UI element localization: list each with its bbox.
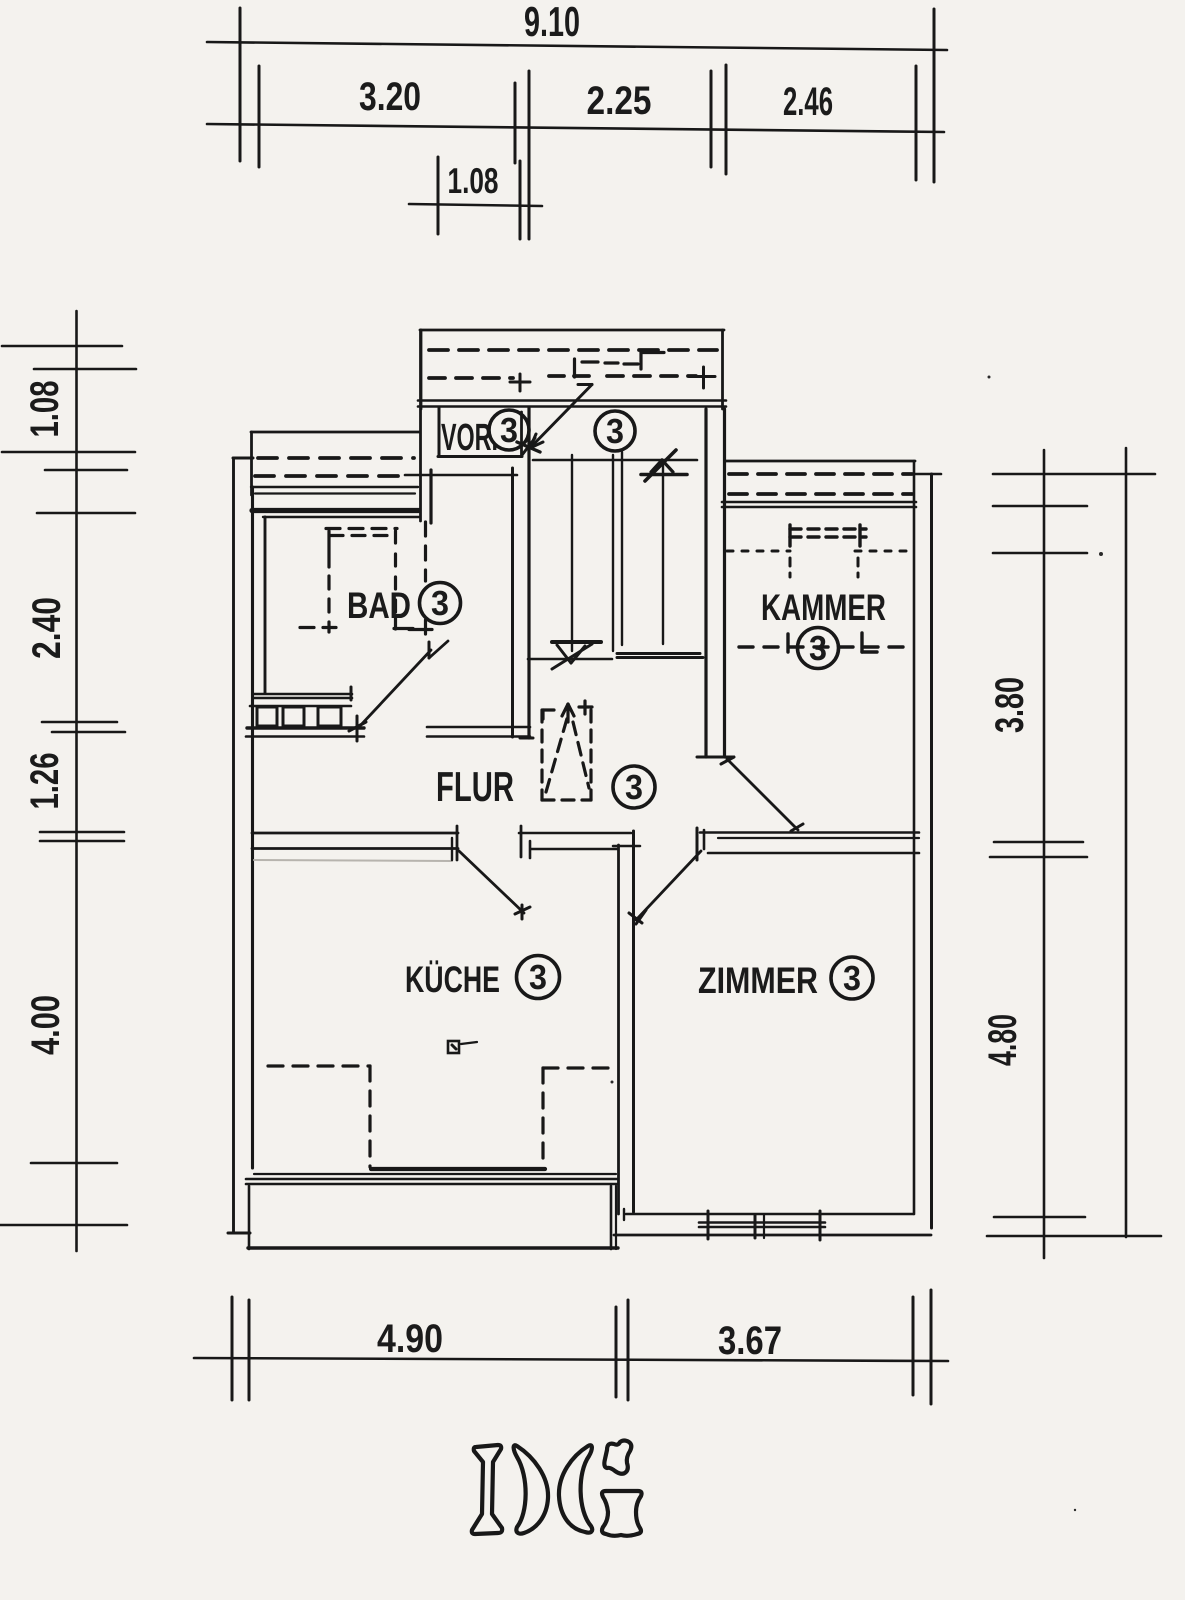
svg-text:3: 3 bbox=[529, 958, 547, 997]
svg-text:BAD: BAD bbox=[347, 585, 411, 626]
svg-text:KAMMER: KAMMER bbox=[761, 587, 886, 628]
svg-text:2.25: 2.25 bbox=[587, 79, 652, 123]
svg-text:3: 3 bbox=[625, 768, 643, 807]
svg-text:4.90: 4.90 bbox=[377, 1317, 443, 1361]
svg-text:3: 3 bbox=[606, 412, 624, 451]
svg-text:KÜCHE: KÜCHE bbox=[405, 959, 500, 1000]
svg-text:3: 3 bbox=[809, 629, 827, 668]
svg-text:3: 3 bbox=[500, 411, 518, 450]
svg-text:4.00: 4.00 bbox=[24, 995, 68, 1055]
svg-text:2.40: 2.40 bbox=[25, 597, 69, 659]
svg-text:1.26: 1.26 bbox=[23, 753, 67, 810]
svg-text:3.80: 3.80 bbox=[988, 677, 1032, 733]
svg-text:9.10: 9.10 bbox=[524, 0, 580, 45]
svg-text:1.08: 1.08 bbox=[23, 381, 67, 438]
svg-text:3.20: 3.20 bbox=[359, 75, 421, 119]
svg-text:3: 3 bbox=[431, 584, 449, 623]
svg-text:2.46: 2.46 bbox=[783, 80, 833, 124]
svg-text:ZIMMER: ZIMMER bbox=[698, 960, 818, 1001]
svg-text:3.67: 3.67 bbox=[718, 1319, 782, 1363]
svg-text:1.08: 1.08 bbox=[448, 160, 499, 201]
svg-text:4.80: 4.80 bbox=[981, 1014, 1025, 1066]
svg-text:FLUR: FLUR bbox=[436, 763, 514, 810]
svg-text:3: 3 bbox=[843, 959, 861, 998]
